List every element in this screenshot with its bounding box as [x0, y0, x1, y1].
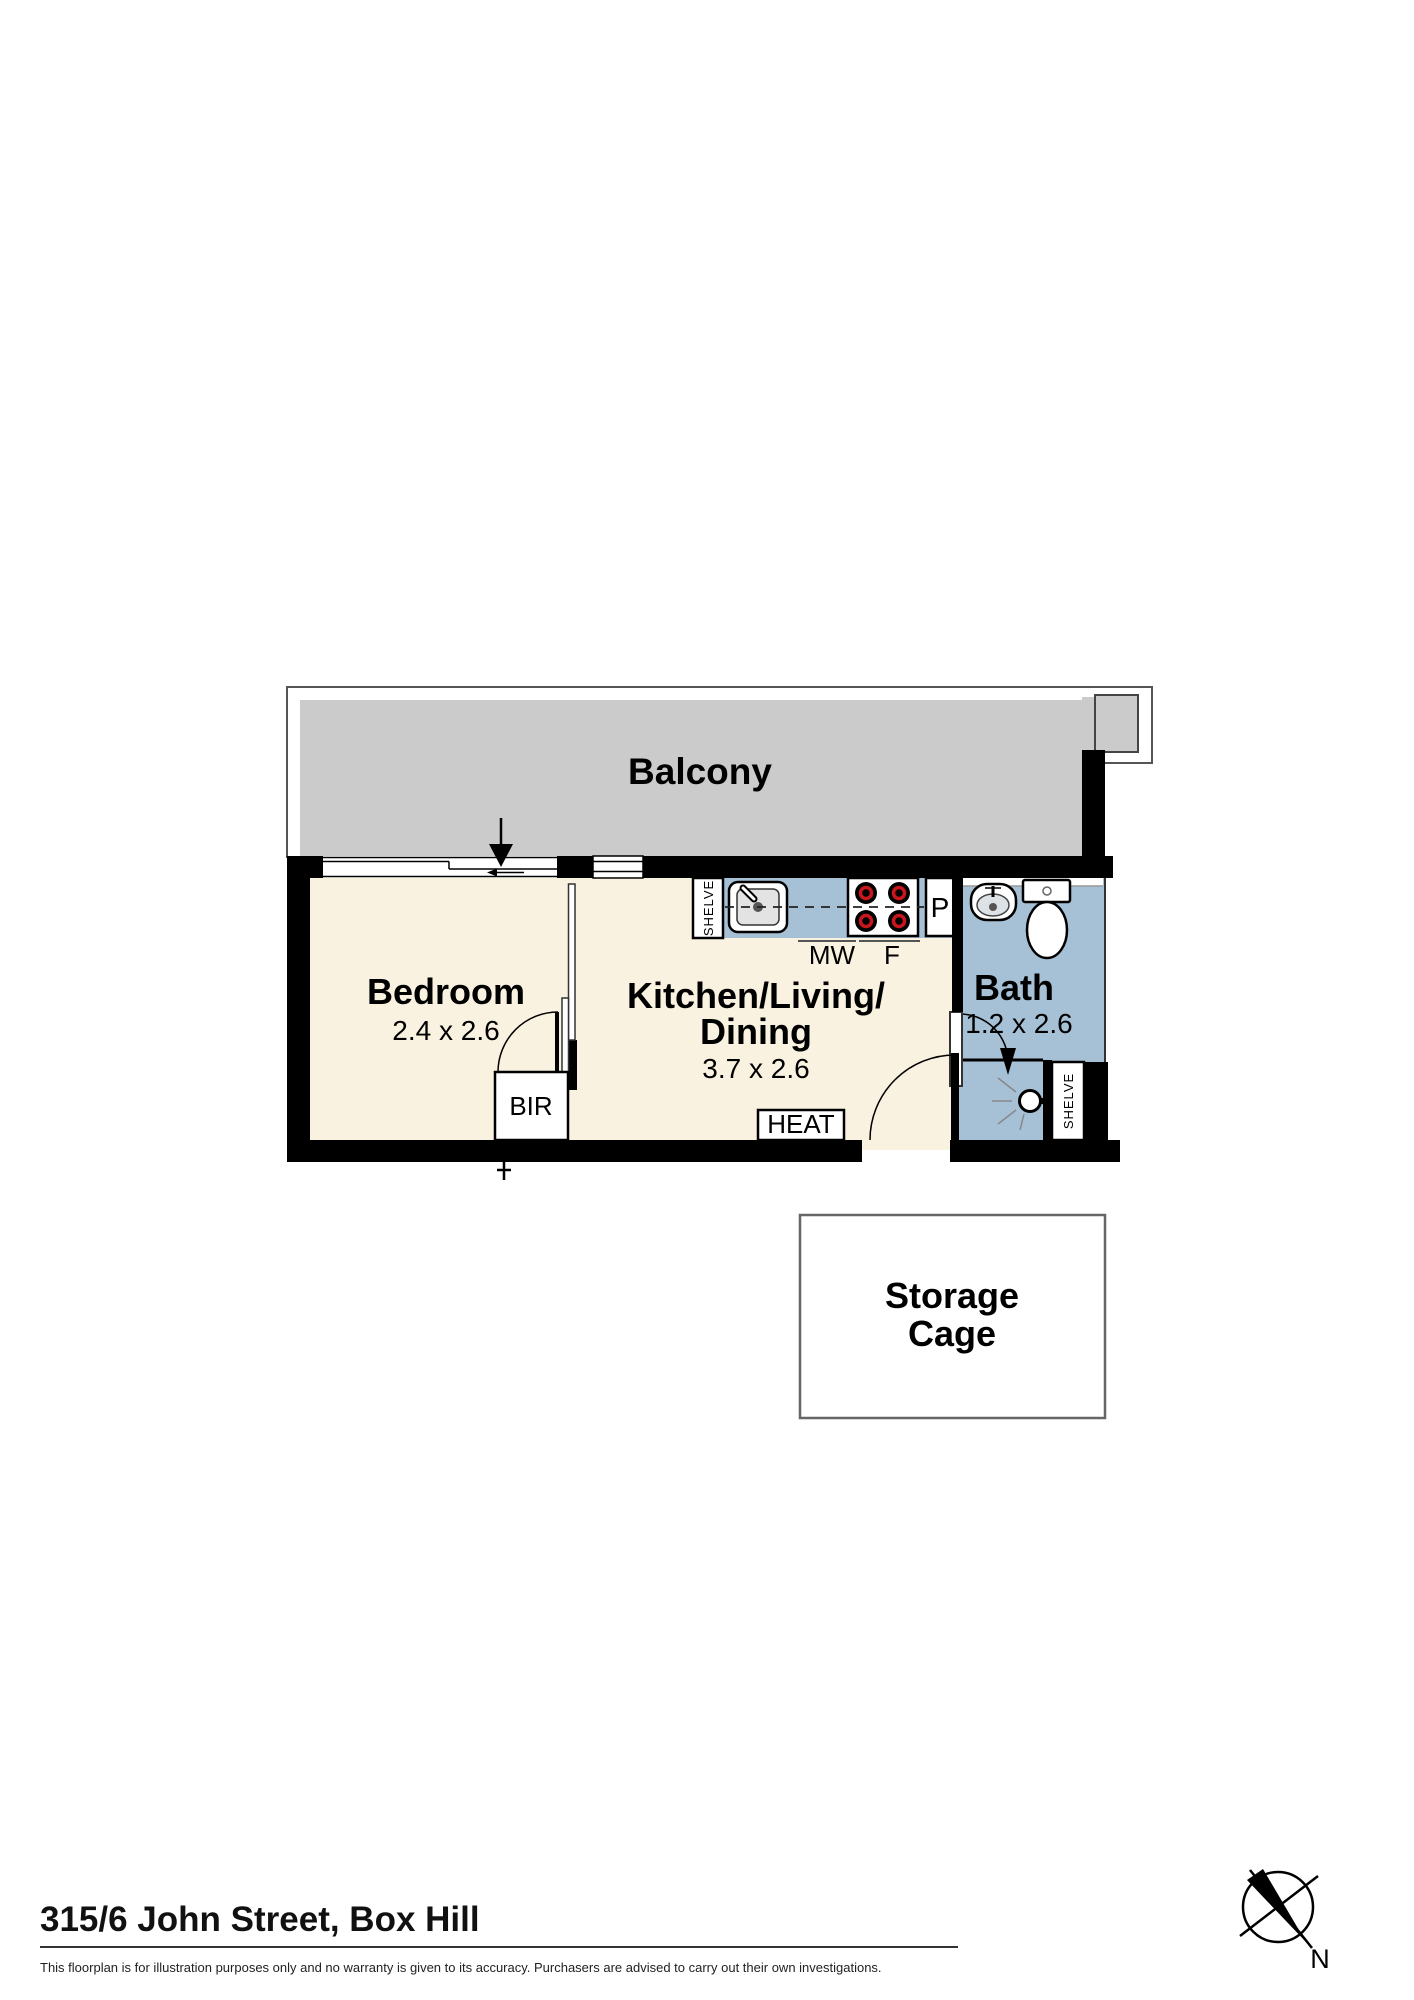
bath-shelf-label: SHELVE: [1061, 1073, 1076, 1129]
storage-cage-label-line1: Storage: [885, 1275, 1019, 1316]
bedroom-door-leaf: [555, 1012, 559, 1072]
bath-label: Bath: [974, 967, 1054, 1008]
bedroom-window: [593, 856, 643, 878]
footer-divider: [40, 1946, 958, 1948]
bir-label: BIR: [509, 1091, 552, 1121]
pantry-label: P: [931, 892, 950, 923]
address-title: 315/6 John Street, Box Hill: [40, 1900, 480, 1940]
disclaimer-text: This floorplan is for illustration purpo…: [40, 1960, 1000, 1975]
bath-basin: [971, 884, 1016, 920]
bedroom-dimensions: 2.4 x 2.6: [392, 1015, 499, 1046]
kitchen-shelf-label: SHELVE: [701, 880, 716, 936]
balcony-label: Balcony: [628, 751, 772, 792]
balcony-sliding-door: [323, 856, 557, 878]
floorplan-page: Balcony SHELVE P MW F B: [0, 0, 1414, 2000]
heat-label: HEAT: [767, 1109, 835, 1139]
floorplan-drawing: Balcony SHELVE P MW F B: [0, 0, 1414, 2000]
toilet: [1023, 880, 1070, 958]
wall-tick-mark: [497, 1162, 511, 1180]
compass-icon: [1240, 1869, 1318, 1948]
kitchen-living-dimensions: 3.7 x 2.6: [702, 1053, 809, 1084]
bath-dimensions: 1.2 x 2.6: [965, 1008, 1072, 1039]
fridge-label: F: [884, 940, 900, 970]
kitchen-living-label-line1: Kitchen/Living/: [627, 975, 885, 1016]
kitchen-living-label-line2: Dining: [700, 1011, 812, 1052]
sliding-panel-1: [569, 884, 576, 1040]
compass-north-label: N: [1310, 1944, 1330, 1974]
microwave-label: MW: [809, 940, 856, 970]
balcony-extension: [1095, 695, 1138, 752]
bedroom-label: Bedroom: [367, 971, 525, 1012]
storage-cage-label-line2: Cage: [908, 1313, 996, 1354]
